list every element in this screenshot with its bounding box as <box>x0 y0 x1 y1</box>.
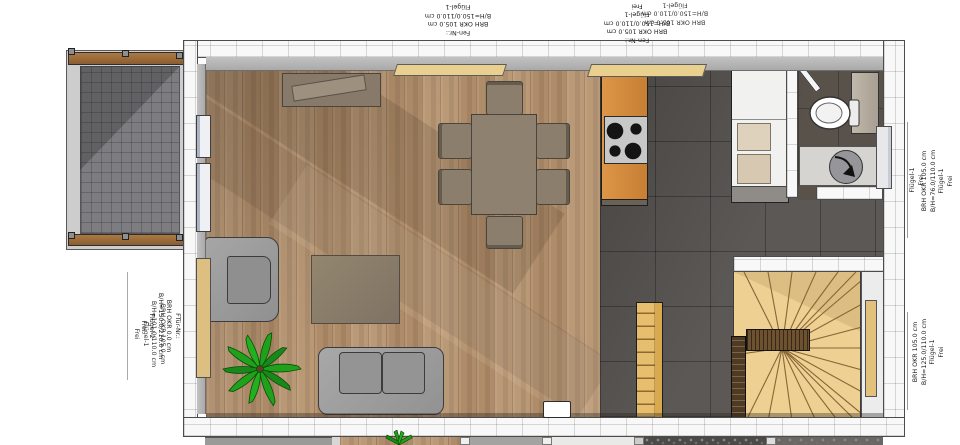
wall-right <box>883 40 905 437</box>
bathroom-door-opening <box>798 186 816 200</box>
potted-plant-small <box>382 430 416 445</box>
window-top-living <box>393 64 507 76</box>
lower-room-segment <box>542 437 552 445</box>
lower-room-segment <box>470 437 542 445</box>
lower-room-segment <box>552 437 634 445</box>
toilet <box>808 92 862 134</box>
shower-drain <box>826 148 866 186</box>
annotation-left-door-b: BRH OKR 105.0 cm B/H=101.0/110.0 cm Flüg… <box>132 290 166 378</box>
fridge-cabinet-base <box>732 186 788 202</box>
balcony-bracket <box>68 48 75 55</box>
window-left-upper <box>196 115 211 158</box>
annotation-top-window-left: Fen-Nr.: BRH OKR 105.0 cm B/H=150.0/110.… <box>396 2 520 36</box>
wall-switch-box <box>543 401 571 418</box>
cooktop <box>604 116 648 164</box>
sofa-cushion <box>382 352 425 394</box>
fridge-cabinet-divider <box>732 119 788 120</box>
annotation-leader-line <box>907 122 908 238</box>
dining-chair <box>486 216 523 249</box>
hall-shelf <box>636 302 663 419</box>
annotation-leader-line <box>907 312 908 410</box>
coffee-table <box>311 255 400 324</box>
balcony-bracket <box>176 52 183 59</box>
dining-chair <box>536 169 570 205</box>
lower-room-segment <box>766 437 776 445</box>
lower-room-segment <box>776 437 883 445</box>
lower-room-segment <box>644 437 766 445</box>
fridge-cabinet-panel <box>737 154 771 184</box>
balcony-bracket <box>176 234 183 241</box>
dining-chair <box>438 169 472 205</box>
window-top-kitchen <box>587 64 707 77</box>
balcony-bracket <box>68 232 75 239</box>
balcony-bracket <box>122 233 129 240</box>
fridge-cabinet-panel <box>737 123 771 151</box>
dining-chair <box>438 123 472 159</box>
wall-bottom <box>183 417 905 437</box>
annotation-right-window-lower: BRH OKR 105.0 cm B/H=125.0/110.0 cm Flüg… <box>912 292 946 412</box>
annotation-top-window-right-b: BRH OKR 105.0 cm B/H=150.0/110.0 cm Flüg… <box>615 0 735 26</box>
annotation-leader-line <box>127 272 128 380</box>
dining-chair <box>536 123 570 159</box>
balcony-bracket <box>122 50 129 57</box>
kitchen-counter-edge <box>601 199 648 206</box>
lower-floor-strip <box>183 437 905 445</box>
window-left-upper <box>196 163 211 232</box>
potted-plant <box>218 326 302 412</box>
dining-chair <box>486 81 523 115</box>
lower-room-segment <box>460 437 470 445</box>
stair-window <box>865 300 877 397</box>
floor-plan-canvas: Fen-Nr.: BRH OKR 105.0 cm B/H=150.0/110.… <box>0 0 960 445</box>
sofa-cushion <box>339 352 382 394</box>
armchair-seat <box>227 256 271 304</box>
bathroom-wall-bottom <box>816 186 883 200</box>
dining-table <box>471 114 537 215</box>
lower-room-segment <box>205 437 332 445</box>
stair-wall-top <box>733 256 885 272</box>
annotation-right-window-upper: BRH OKR 105.0 cm B/H=76.0/110.0 cm Flüge… <box>921 122 955 240</box>
window-left-lower <box>196 258 211 378</box>
lower-room-segment <box>332 437 340 445</box>
wall-face-top <box>206 57 883 71</box>
stair-railing <box>731 336 746 420</box>
window-right-bathroom <box>876 126 892 189</box>
wall-top <box>183 40 905 58</box>
stair-handrail <box>746 329 810 351</box>
lower-room-segment <box>634 437 644 445</box>
